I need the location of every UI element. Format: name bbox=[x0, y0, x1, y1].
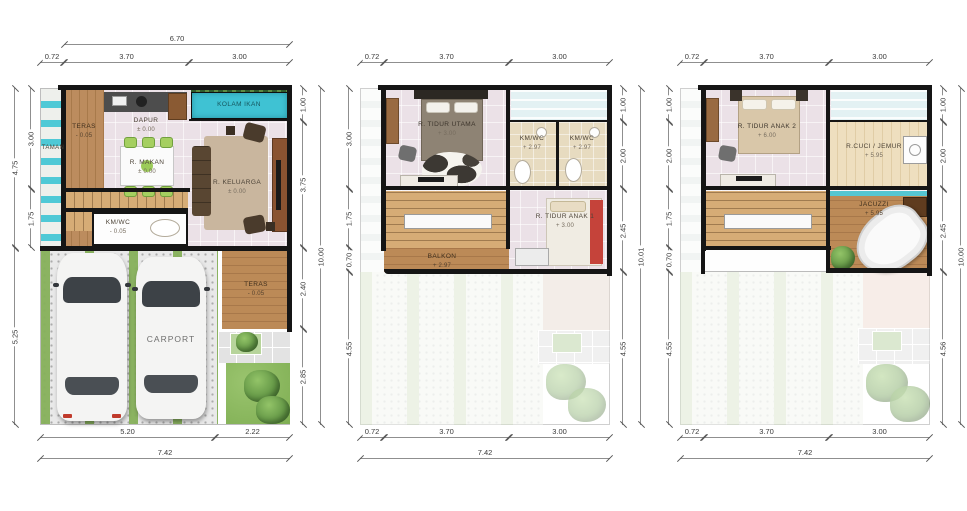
label-dapur: DAPUR± 0.00 bbox=[134, 116, 159, 135]
dim: 3.00 bbox=[829, 62, 930, 63]
wall-mid bbox=[704, 186, 930, 190]
dim: 4.55 bbox=[622, 272, 623, 425]
pillow bbox=[426, 102, 450, 113]
kitchen-cabinet bbox=[168, 93, 187, 120]
ghost-planter bbox=[552, 333, 582, 353]
wall-left bbox=[701, 85, 706, 251]
dim: 1.00 bbox=[942, 88, 943, 122]
dim: 3.00 bbox=[509, 437, 610, 438]
wall-right bbox=[927, 85, 932, 276]
tv bbox=[736, 176, 762, 181]
ghost-teras bbox=[863, 272, 930, 328]
wall-stair-bottom bbox=[701, 246, 831, 250]
wall-right bbox=[607, 85, 612, 276]
rear-window bbox=[65, 377, 119, 395]
windshield bbox=[63, 277, 121, 303]
dining-chair bbox=[160, 137, 173, 148]
dim: 3.00 bbox=[348, 88, 349, 189]
pillow bbox=[771, 99, 796, 110]
wall-vert bbox=[506, 88, 510, 189]
stove bbox=[136, 96, 147, 107]
dim: 0.72 bbox=[360, 62, 384, 63]
dim: 0.72 bbox=[680, 437, 704, 438]
desk bbox=[386, 98, 399, 144]
label-r-keluarga: R. KELUARGA± 0.00 bbox=[213, 178, 261, 197]
bed-headboard bbox=[414, 90, 488, 99]
bath-divider bbox=[556, 122, 559, 189]
side-table bbox=[226, 126, 235, 135]
dim: 2.45 bbox=[622, 189, 623, 272]
wall-mid bbox=[384, 186, 610, 190]
counter-edge bbox=[829, 191, 930, 196]
wall-bottom bbox=[40, 246, 292, 251]
void-window-strip bbox=[831, 90, 928, 120]
shrub bbox=[236, 332, 258, 352]
dim: 4.56 bbox=[942, 272, 943, 425]
potted-plant bbox=[831, 246, 855, 270]
dim: 3.70 bbox=[704, 62, 829, 63]
dim: 0.72 bbox=[40, 62, 64, 63]
label-r-tidur-utama: R. TIDUR UTAMA+ 3.00 bbox=[418, 120, 476, 139]
dim: 1.75 bbox=[30, 189, 31, 248]
sofa bbox=[192, 146, 211, 216]
wall-top bbox=[58, 85, 292, 90]
ghost-paving bbox=[360, 272, 543, 425]
label-teras-belakang: TERAS- 0.05 bbox=[244, 280, 268, 299]
label-r-cuci-jemur: R.CUCI / JEMUR+ 5.95 bbox=[846, 142, 902, 161]
dim: 5.20 bbox=[40, 437, 215, 438]
dim: 3.70 bbox=[384, 437, 509, 438]
label-r-tidur-anak-1: R. TIDUR ANAK 1+ 3.00 bbox=[536, 212, 595, 231]
desk bbox=[515, 248, 549, 266]
dim: 2.00 bbox=[668, 122, 669, 189]
side-mirror bbox=[204, 287, 210, 291]
toilet bbox=[565, 158, 582, 182]
wall-top bbox=[698, 85, 932, 90]
dim: 2.22 bbox=[215, 437, 290, 438]
dim: 3.75 bbox=[302, 122, 303, 248]
pillow bbox=[454, 102, 478, 113]
ghost-tree bbox=[568, 388, 606, 422]
label-r-tidur-anak-2: R. TIDUR ANAK 2+ 6.00 bbox=[738, 122, 797, 141]
ghost-teras bbox=[543, 272, 610, 330]
pool-wall bbox=[189, 119, 290, 121]
side-mirror bbox=[125, 283, 131, 287]
toilet bbox=[514, 160, 531, 184]
dim: 2.85 bbox=[302, 329, 303, 425]
dim: 2.40 bbox=[302, 248, 303, 329]
label-teras: TERAS- 0.05 bbox=[72, 122, 96, 141]
wall-vert bbox=[826, 189, 830, 272]
void-strip bbox=[704, 248, 829, 272]
wall-left bbox=[61, 85, 66, 251]
dim: 7.42 bbox=[40, 458, 290, 459]
side-table bbox=[266, 222, 275, 231]
desk bbox=[706, 98, 719, 142]
side-mirror bbox=[53, 283, 59, 287]
ghost-paving bbox=[680, 272, 863, 425]
dim: 10.00 bbox=[960, 88, 961, 425]
dim: 1.00 bbox=[668, 88, 669, 122]
tree bbox=[256, 396, 290, 424]
floor-plan-sheet: TAMAN TERAS- 0.05 DAPUR± 0.00 KOLAM IKAN… bbox=[0, 0, 967, 511]
tv bbox=[276, 160, 281, 210]
dim: 3.00 bbox=[829, 437, 930, 438]
wall-mid bbox=[64, 188, 190, 192]
dim: 4.55 bbox=[348, 272, 349, 425]
wall-left-low bbox=[701, 248, 705, 274]
dim: 1.00 bbox=[622, 88, 623, 122]
dim: 3.70 bbox=[64, 62, 189, 63]
taillight bbox=[63, 414, 72, 418]
windshield bbox=[142, 281, 200, 307]
car bbox=[57, 253, 127, 421]
dim: 2.45 bbox=[942, 189, 943, 272]
dim: 0.72 bbox=[680, 62, 704, 63]
dim: 3.00 bbox=[509, 62, 610, 63]
label-taman: TAMAN bbox=[42, 144, 65, 153]
dim: 0.72 bbox=[360, 437, 384, 438]
dim: 10.01 bbox=[640, 88, 641, 425]
wall-bottom bbox=[826, 268, 932, 273]
ghost-tree bbox=[890, 386, 930, 422]
dim: 3.00 bbox=[30, 88, 31, 189]
label-carport: CARPORT bbox=[147, 333, 195, 346]
label-km-wc: KM/WC- 0.05 bbox=[106, 218, 130, 237]
bed-headboard bbox=[796, 89, 808, 101]
pillow bbox=[742, 99, 767, 110]
label-r-makan: R. MAKAN± 0.00 bbox=[130, 158, 165, 177]
label-kolam-ikan: KOLAM IKAN bbox=[217, 100, 261, 110]
lower-storey-ghost bbox=[680, 272, 930, 425]
window-sill bbox=[829, 120, 930, 122]
taillight bbox=[112, 414, 121, 418]
wall-right bbox=[287, 85, 292, 332]
wall-left bbox=[381, 85, 386, 251]
wall-bottom bbox=[384, 269, 612, 274]
toilet bbox=[150, 219, 180, 237]
washer-door bbox=[909, 144, 921, 156]
dim: 7.42 bbox=[360, 458, 610, 459]
kitchen-sink bbox=[112, 96, 127, 106]
blanket bbox=[590, 200, 603, 264]
window-sill bbox=[509, 120, 610, 122]
dim: 0.70 bbox=[668, 248, 669, 272]
dining-chair bbox=[142, 137, 155, 148]
lower-storey-ghost bbox=[360, 272, 610, 425]
stair-landing bbox=[404, 214, 492, 229]
label-km-wc-1: KM/WC+ 2.97 bbox=[520, 134, 544, 153]
label-km-wc-2: KM/WC+ 2.97 bbox=[570, 134, 594, 153]
dim: 4.75 bbox=[14, 88, 15, 248]
dining-chair bbox=[124, 137, 137, 148]
ghost-planter bbox=[872, 331, 902, 351]
dim: 1.00 bbox=[302, 88, 303, 122]
dim: 6.70 bbox=[64, 44, 290, 45]
label-balkon: BALKON+ 2.97 bbox=[428, 252, 457, 271]
chair bbox=[398, 144, 418, 162]
tv bbox=[418, 177, 444, 182]
dim: 3.00 bbox=[189, 62, 290, 63]
wall-vert bbox=[826, 88, 830, 189]
pillow bbox=[550, 201, 586, 212]
dim: 2.00 bbox=[942, 122, 943, 189]
rear-window bbox=[144, 375, 198, 393]
dim: 1.75 bbox=[668, 189, 669, 248]
dim: 0.70 bbox=[348, 248, 349, 272]
dim: 7.42 bbox=[680, 458, 930, 459]
dim: 4.55 bbox=[668, 272, 669, 425]
bed-headboard bbox=[730, 89, 742, 101]
void-window-strip bbox=[511, 90, 608, 120]
dim: 3.70 bbox=[704, 437, 829, 438]
label-jacuzzi: JACUZZI+ 5.95 bbox=[859, 200, 889, 219]
stair-landing bbox=[724, 214, 812, 229]
dim: 1.75 bbox=[348, 189, 349, 248]
dim: 10.00 bbox=[320, 88, 321, 425]
chair bbox=[718, 145, 737, 163]
dim: 3.70 bbox=[384, 62, 509, 63]
wall-top bbox=[378, 85, 612, 90]
wall-vert bbox=[506, 189, 510, 249]
dim: 2.00 bbox=[622, 122, 623, 189]
dim: 5.25 bbox=[14, 248, 15, 425]
side-mirror bbox=[132, 287, 138, 291]
